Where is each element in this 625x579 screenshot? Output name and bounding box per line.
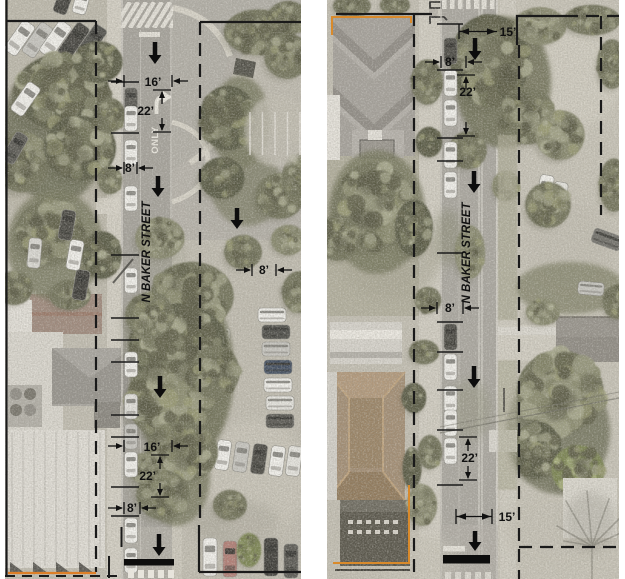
svg-text:8’: 8’ bbox=[259, 263, 269, 277]
svg-text:22’: 22’ bbox=[139, 469, 156, 483]
svg-text:16’: 16’ bbox=[144, 440, 161, 454]
svg-text:N BAKER STREET: N BAKER STREET bbox=[141, 201, 153, 303]
svg-text:22’: 22’ bbox=[137, 104, 154, 118]
svg-text:8’: 8’ bbox=[125, 161, 135, 175]
svg-text:8’: 8’ bbox=[445, 55, 455, 69]
svg-text:22’: 22’ bbox=[459, 85, 476, 99]
svg-text:15’: 15’ bbox=[499, 510, 516, 524]
svg-text:16’: 16’ bbox=[145, 75, 162, 89]
svg-text:8’: 8’ bbox=[445, 301, 455, 315]
svg-text:N BAKER STREET: N BAKER STREET bbox=[461, 202, 473, 304]
svg-text:22’: 22’ bbox=[461, 451, 478, 465]
svg-text:8’: 8’ bbox=[127, 501, 137, 515]
svg-text:15’: 15’ bbox=[500, 25, 517, 39]
